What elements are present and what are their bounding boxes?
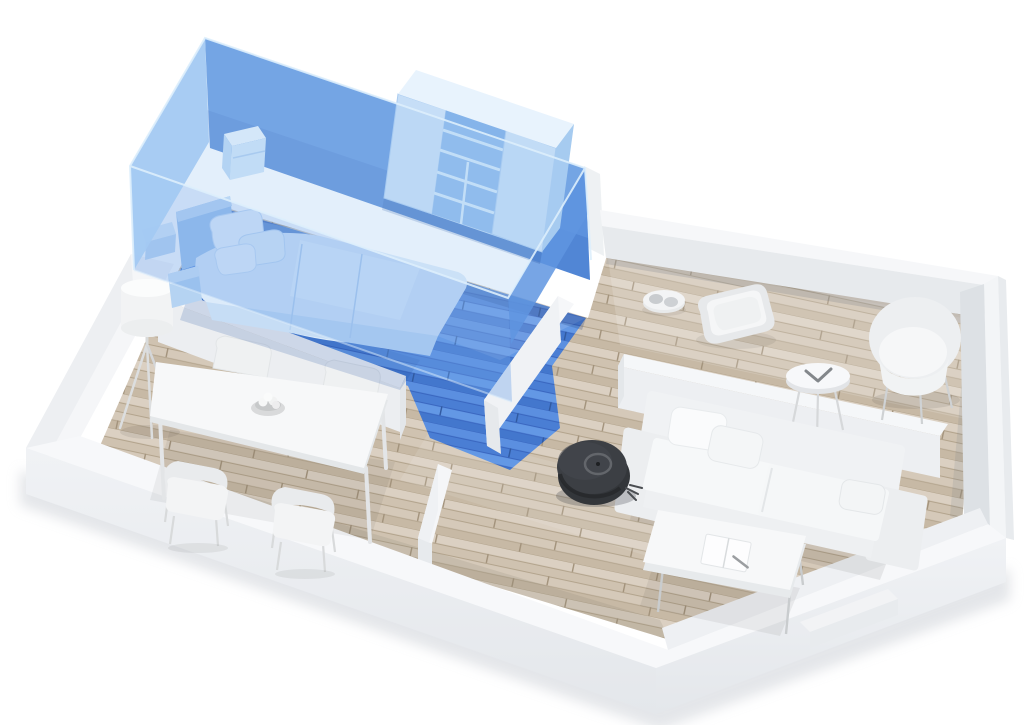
floor-plan-stage: [0, 0, 1024, 725]
tub-armchair: [869, 297, 961, 424]
fruit: [272, 401, 280, 409]
fruit: [264, 393, 273, 402]
pet-bowl-right: [664, 297, 678, 307]
pet-bowls: [642, 290, 686, 316]
side-table-top: [786, 363, 850, 389]
armchair-seat: [879, 327, 947, 377]
pet-bowl-left: [649, 294, 663, 304]
